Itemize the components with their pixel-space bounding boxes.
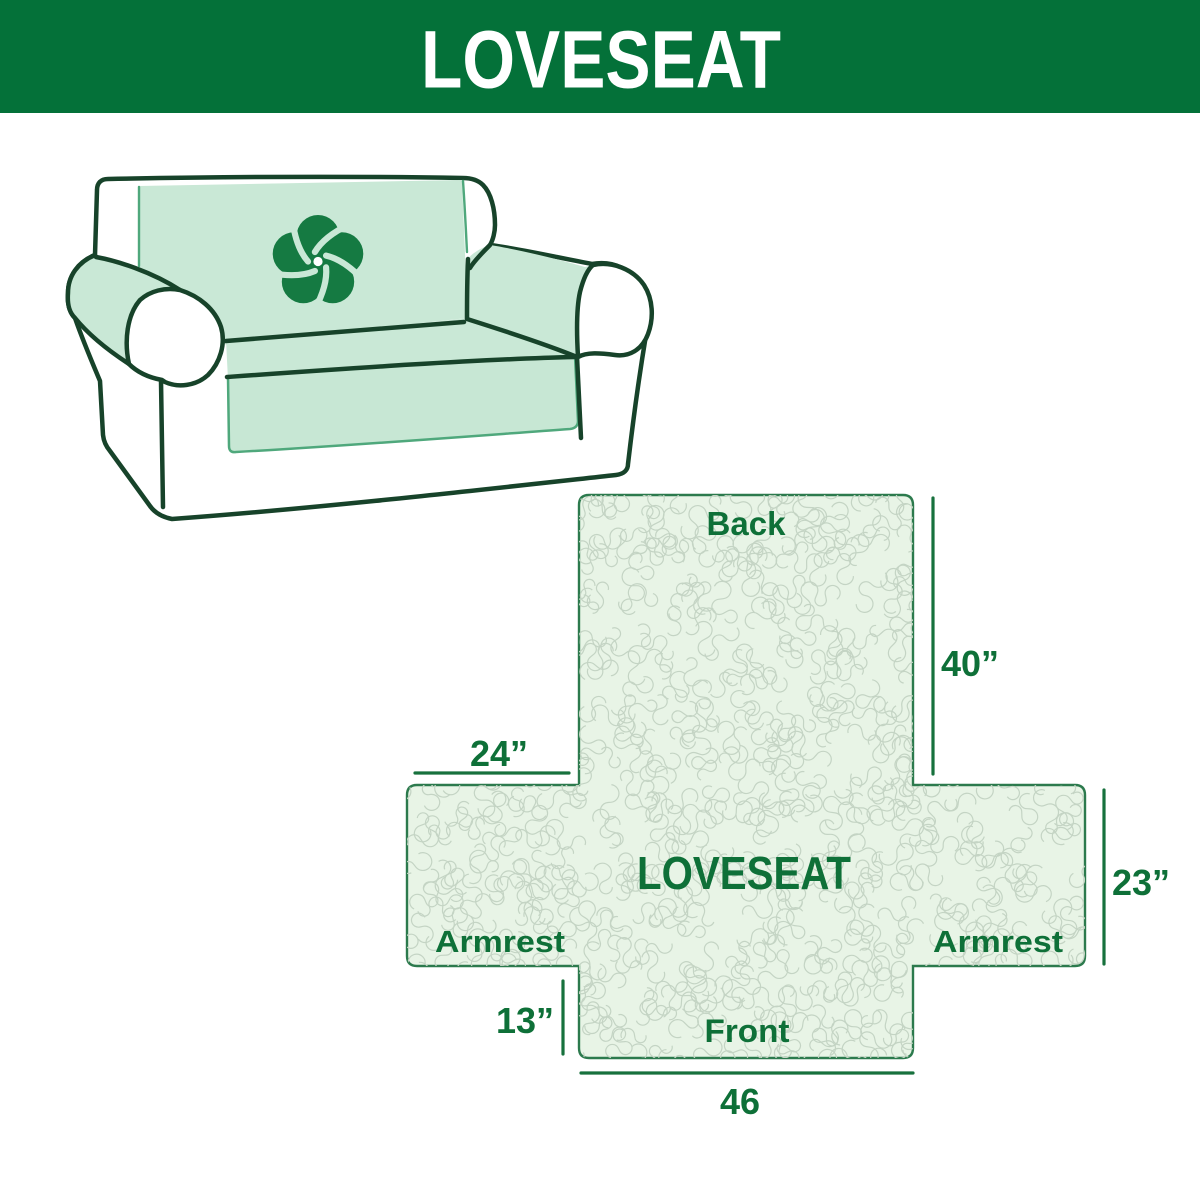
svg-text:Armrest: Armrest	[933, 924, 1063, 959]
svg-text:46: 46	[720, 1081, 760, 1122]
svg-text:Back: Back	[707, 505, 787, 542]
svg-text:23”: 23”	[1112, 862, 1170, 903]
svg-text:Armrest: Armrest	[435, 924, 565, 959]
svg-text:LOVESEAT: LOVESEAT	[421, 15, 781, 106]
svg-text:LOVESEAT: LOVESEAT	[637, 847, 851, 899]
svg-text:13”: 13”	[496, 1000, 554, 1041]
svg-text:24”: 24”	[470, 733, 528, 774]
svg-text:Front: Front	[705, 1013, 790, 1049]
svg-text:40”: 40”	[941, 643, 999, 684]
